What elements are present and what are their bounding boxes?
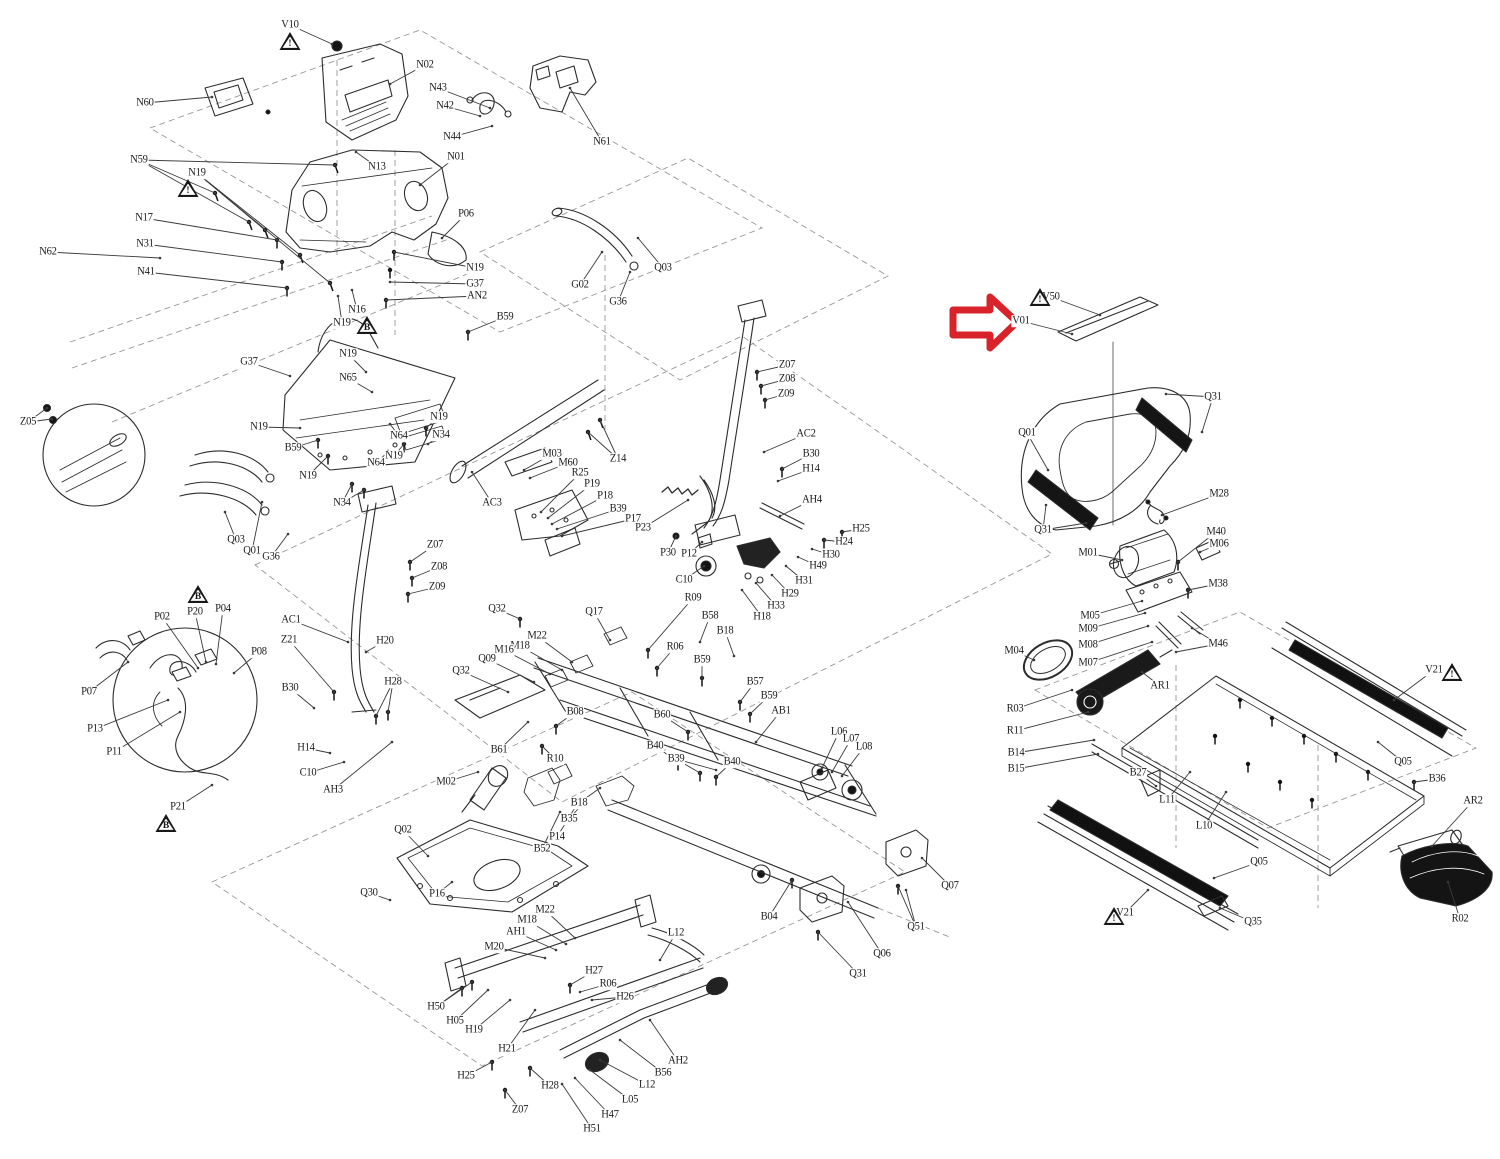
part-label: H24 bbox=[834, 536, 853, 548]
part-label: P16 bbox=[428, 888, 445, 900]
part-label: H14 bbox=[801, 463, 820, 475]
part-label: N17 bbox=[134, 212, 153, 224]
part-label: M40 bbox=[1205, 526, 1226, 538]
part-label: R03 bbox=[1006, 703, 1025, 715]
part-label: P20 bbox=[186, 606, 203, 618]
part-label: G37 bbox=[465, 278, 484, 290]
part-label: M05 bbox=[1079, 610, 1100, 622]
part-label: H28 bbox=[383, 676, 402, 688]
part-label: Q09 bbox=[477, 653, 496, 665]
warning-triangle-icon: ! bbox=[1030, 288, 1051, 306]
part-label: Z09 bbox=[428, 581, 446, 593]
detail-b-triangle-icon: B bbox=[357, 316, 378, 334]
part-label: N01 bbox=[446, 151, 465, 163]
part-label: N43 bbox=[428, 82, 447, 94]
part-label: N62 bbox=[38, 246, 57, 258]
part-label: Q32 bbox=[451, 665, 470, 677]
part-label: Q01 bbox=[1017, 427, 1036, 439]
part-label: N19 bbox=[465, 262, 484, 274]
part-label: M04 bbox=[1003, 645, 1024, 657]
part-label: P04 bbox=[214, 603, 231, 615]
part-label: N02 bbox=[415, 59, 434, 71]
part-label: H50 bbox=[426, 1001, 445, 1013]
part-label: P06 bbox=[457, 208, 474, 220]
part-label: AH3 bbox=[322, 784, 344, 796]
part-label: AR1 bbox=[1149, 680, 1170, 692]
part-label: M01 bbox=[1077, 547, 1098, 559]
part-label: L12 bbox=[667, 927, 685, 939]
part-label: B59 bbox=[760, 690, 779, 702]
part-label: B08 bbox=[566, 706, 585, 718]
part-label: P18 bbox=[596, 490, 613, 502]
part-label: Q51 bbox=[906, 921, 925, 933]
exploded-parts-diagram: V10N60N59N19N17N31N41N62N02N43N42N44N13N… bbox=[0, 0, 1500, 1159]
part-label: H21 bbox=[497, 1043, 516, 1055]
part-label: N13 bbox=[367, 161, 386, 173]
part-label: Q07 bbox=[940, 880, 959, 892]
part-label: Z07 bbox=[511, 1104, 529, 1116]
part-label: Z21 bbox=[280, 634, 298, 646]
part-label: N16 bbox=[347, 304, 366, 316]
part-label: H26 bbox=[615, 991, 634, 1003]
part-label: P19 bbox=[583, 478, 600, 490]
part-label: AH4 bbox=[801, 494, 823, 506]
part-label: N44 bbox=[442, 131, 461, 143]
part-label: Q05 bbox=[1393, 756, 1412, 768]
part-label: N19 bbox=[429, 411, 448, 423]
part-label: Q35 bbox=[1243, 916, 1262, 928]
part-label: C10 bbox=[675, 574, 694, 586]
part-label: N41 bbox=[136, 266, 155, 278]
detail-b-triangle-icon: B bbox=[156, 814, 177, 832]
part-label: G36 bbox=[608, 296, 627, 308]
part-label: C10 bbox=[299, 767, 318, 779]
part-label: AH2 bbox=[667, 1055, 689, 1067]
leader-lines bbox=[0, 0, 1500, 1159]
part-label: Q17 bbox=[584, 606, 603, 618]
part-label: Z05 bbox=[19, 416, 37, 428]
part-label: G36 bbox=[261, 551, 280, 563]
part-label: M28 bbox=[1208, 488, 1229, 500]
part-label: Z14 bbox=[609, 453, 627, 465]
part-label: N19 bbox=[332, 317, 351, 329]
part-label: B40 bbox=[723, 756, 742, 768]
part-label: AR2 bbox=[1462, 795, 1483, 807]
part-label: H49 bbox=[808, 560, 827, 572]
part-label: H05 bbox=[445, 1015, 464, 1027]
part-label: B60 bbox=[653, 709, 672, 721]
part-label: N34 bbox=[431, 429, 450, 441]
part-label: P11 bbox=[105, 746, 122, 758]
detail-b-triangle-icon: B bbox=[188, 585, 209, 603]
part-label: M46 bbox=[1207, 638, 1228, 650]
part-label: B18 bbox=[570, 797, 589, 809]
part-label: M06 bbox=[1208, 538, 1229, 550]
part-label: N64 bbox=[366, 457, 385, 469]
part-label: L11 bbox=[1158, 794, 1176, 806]
part-label: Q31 bbox=[1033, 524, 1052, 536]
part-label: H28 bbox=[540, 1080, 559, 1092]
part-label: B18 bbox=[716, 625, 735, 637]
part-label: Q32 bbox=[487, 603, 506, 615]
part-label: B57 bbox=[746, 676, 765, 688]
part-label: P14 bbox=[548, 831, 565, 843]
part-label: P21 bbox=[169, 801, 186, 813]
part-label: B27 bbox=[1129, 767, 1148, 779]
part-label: H27 bbox=[584, 965, 603, 977]
part-label: P30 bbox=[659, 547, 676, 559]
part-label: N34 bbox=[332, 497, 351, 509]
part-label: B36 bbox=[1428, 773, 1447, 785]
part-label: G02 bbox=[570, 279, 589, 291]
part-label: AN2 bbox=[466, 290, 488, 302]
part-label: N65 bbox=[338, 372, 357, 384]
part-label: AB1 bbox=[770, 705, 791, 717]
part-label: N64 bbox=[389, 430, 408, 442]
part-label: M07 bbox=[1077, 657, 1098, 669]
part-label: H51 bbox=[582, 1123, 601, 1135]
part-label: P07 bbox=[80, 686, 97, 698]
part-label: L12 bbox=[638, 1079, 656, 1091]
part-label: H29 bbox=[780, 588, 799, 600]
part-label: B59 bbox=[496, 311, 515, 323]
part-label: M18 bbox=[516, 914, 537, 926]
part-label: B15 bbox=[1007, 763, 1026, 775]
part-label: Z08 bbox=[778, 373, 796, 385]
part-label: B39 bbox=[667, 753, 686, 765]
part-label: R06 bbox=[666, 641, 685, 653]
part-label: L05 bbox=[621, 1094, 639, 1106]
warning-triangle-icon: ! bbox=[178, 179, 199, 197]
part-label: Z07 bbox=[426, 539, 444, 551]
part-label: R06 bbox=[599, 978, 618, 990]
part-label: M38 bbox=[1207, 578, 1228, 590]
part-label: Q31 bbox=[1203, 391, 1222, 403]
part-label: Q02 bbox=[393, 824, 412, 836]
part-label: N61 bbox=[592, 136, 611, 148]
part-label: M22 bbox=[534, 904, 555, 916]
part-label: R11 bbox=[1006, 725, 1024, 737]
part-label: V01 bbox=[1011, 315, 1030, 327]
part-label: M02 bbox=[435, 776, 456, 788]
part-label: R02 bbox=[1451, 913, 1470, 925]
part-label: V10 bbox=[280, 19, 299, 31]
part-label: N19 bbox=[298, 470, 317, 482]
part-label: R09 bbox=[684, 592, 703, 604]
part-label: N19 bbox=[338, 348, 357, 360]
part-label: G37 bbox=[239, 356, 258, 368]
part-label: P23 bbox=[634, 522, 651, 534]
part-label: B35 bbox=[560, 813, 579, 825]
part-label: N59 bbox=[129, 154, 148, 166]
part-label: Z08 bbox=[430, 561, 448, 573]
part-label: B30 bbox=[802, 448, 821, 460]
part-label: AC2 bbox=[795, 428, 816, 440]
warning-triangle-icon: ! bbox=[280, 32, 301, 50]
part-label: Q03 bbox=[653, 262, 672, 274]
part-label: Q01 bbox=[242, 545, 261, 557]
part-label: B59 bbox=[693, 654, 712, 666]
part-label: M09 bbox=[1077, 623, 1098, 635]
part-label: Q31 bbox=[848, 968, 867, 980]
part-label: Z09 bbox=[777, 388, 795, 400]
part-label: B59 bbox=[284, 442, 303, 454]
part-label: B61 bbox=[490, 744, 509, 756]
part-label: H19 bbox=[464, 1024, 483, 1036]
part-label: Q05 bbox=[1249, 856, 1268, 868]
part-label: H18 bbox=[752, 611, 771, 623]
part-label: B04 bbox=[760, 911, 779, 923]
part-label: R10 bbox=[546, 753, 565, 765]
part-label: Z07 bbox=[778, 359, 796, 371]
part-label: N42 bbox=[435, 100, 454, 112]
warning-triangle-icon: ! bbox=[1104, 907, 1125, 925]
part-label: H20 bbox=[375, 635, 394, 647]
part-label: P13 bbox=[86, 723, 103, 735]
part-label: L10 bbox=[1195, 820, 1213, 832]
part-label: Q30 bbox=[359, 887, 378, 899]
part-label: Q06 bbox=[872, 948, 891, 960]
part-label: B40 bbox=[646, 740, 665, 752]
part-label: B14 bbox=[1007, 747, 1026, 759]
part-label: N60 bbox=[135, 97, 154, 109]
part-label: B30 bbox=[281, 682, 300, 694]
part-label: N19 bbox=[384, 450, 403, 462]
part-label: M20 bbox=[483, 941, 504, 953]
part-label: AH1 bbox=[505, 926, 527, 938]
part-label: N31 bbox=[135, 238, 154, 250]
part-label: AC1 bbox=[280, 614, 301, 626]
part-label: N19 bbox=[187, 167, 206, 179]
part-label: B52 bbox=[533, 843, 552, 855]
part-label: P08 bbox=[250, 646, 267, 658]
part-label: H25 bbox=[456, 1070, 475, 1082]
part-label: H14 bbox=[296, 742, 315, 754]
part-label: L08 bbox=[855, 741, 873, 753]
warning-triangle-icon: ! bbox=[1442, 663, 1463, 681]
part-label: M08 bbox=[1077, 639, 1098, 651]
part-label: B58 bbox=[701, 610, 720, 622]
part-label: H47 bbox=[600, 1109, 619, 1121]
part-label: H25 bbox=[851, 523, 870, 535]
part-label: H31 bbox=[794, 575, 813, 587]
part-label: N19 bbox=[249, 421, 268, 433]
part-label: AC3 bbox=[481, 497, 502, 509]
part-label: M16 bbox=[493, 644, 514, 656]
part-label: P02 bbox=[153, 611, 170, 623]
part-label: P12 bbox=[680, 548, 697, 560]
part-label: B56 bbox=[654, 1067, 673, 1079]
